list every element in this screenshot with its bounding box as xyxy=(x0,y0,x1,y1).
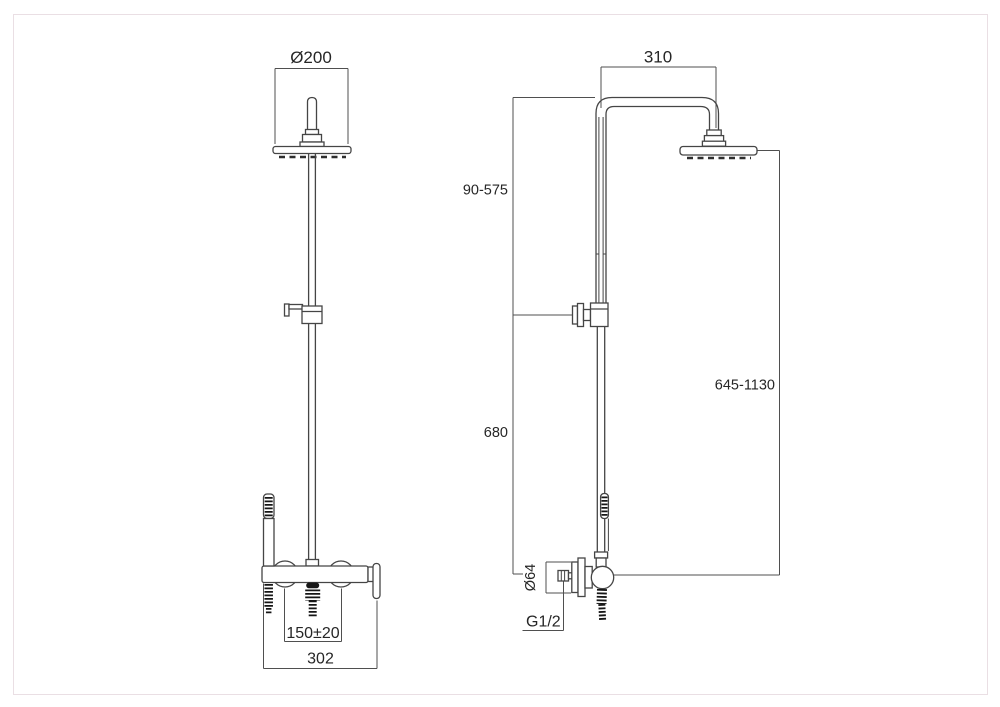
dim-total-height-range xyxy=(610,151,780,576)
dim-label-thread-size: G1/2 xyxy=(526,614,561,631)
dim-label-total-height-range: 645-1130 xyxy=(715,378,775,394)
riser-pipe-lower-front xyxy=(306,324,319,567)
dim-label-inlet-spacing: 150±20 xyxy=(286,625,339,642)
shower-head-front xyxy=(273,147,351,158)
dim-label-head-diameter: Ø200 xyxy=(290,48,332,67)
dim-upper-height-range xyxy=(513,98,595,316)
shower-arm-side xyxy=(596,98,719,307)
dim-lower-height xyxy=(513,315,523,574)
hose-outlet-front xyxy=(306,583,319,618)
front-view: Ø200 150±20 302 xyxy=(262,48,380,669)
dim-label-lower-height: 680 xyxy=(484,425,508,441)
head-connector-side xyxy=(702,130,725,146)
ball-joint-side xyxy=(591,566,613,588)
lever-handle xyxy=(373,564,380,599)
slider-bracket-front xyxy=(285,304,323,324)
riser-pipe-lower-side xyxy=(595,327,609,568)
dim-label-arm-projection: 310 xyxy=(644,48,672,67)
hand-shower-front xyxy=(264,494,275,614)
riser-pipe-upper-front xyxy=(309,154,316,307)
shower-head-side xyxy=(680,147,757,159)
shower-system-drawing: Ø200 150±20 302 xyxy=(0,0,1000,707)
technical-drawing-page: Ø200 150±20 302 xyxy=(0,0,1000,707)
mixer-body-front xyxy=(262,564,380,599)
shower-hose-side xyxy=(602,589,603,620)
wall-bracket-side xyxy=(573,303,609,327)
hand-shower-body xyxy=(264,519,275,567)
thread-nipple xyxy=(558,571,569,582)
shower-arm-front xyxy=(300,98,324,147)
side-view: 310 90-575 680 645-1130 Ø64 G1/2 xyxy=(463,48,780,631)
wall-flange xyxy=(572,562,578,593)
dim-label-upper-height-range: 90-575 xyxy=(463,183,508,199)
dim-label-flange-diameter: Ø64 xyxy=(523,564,539,591)
dim-label-mixer-width: 302 xyxy=(307,651,334,668)
